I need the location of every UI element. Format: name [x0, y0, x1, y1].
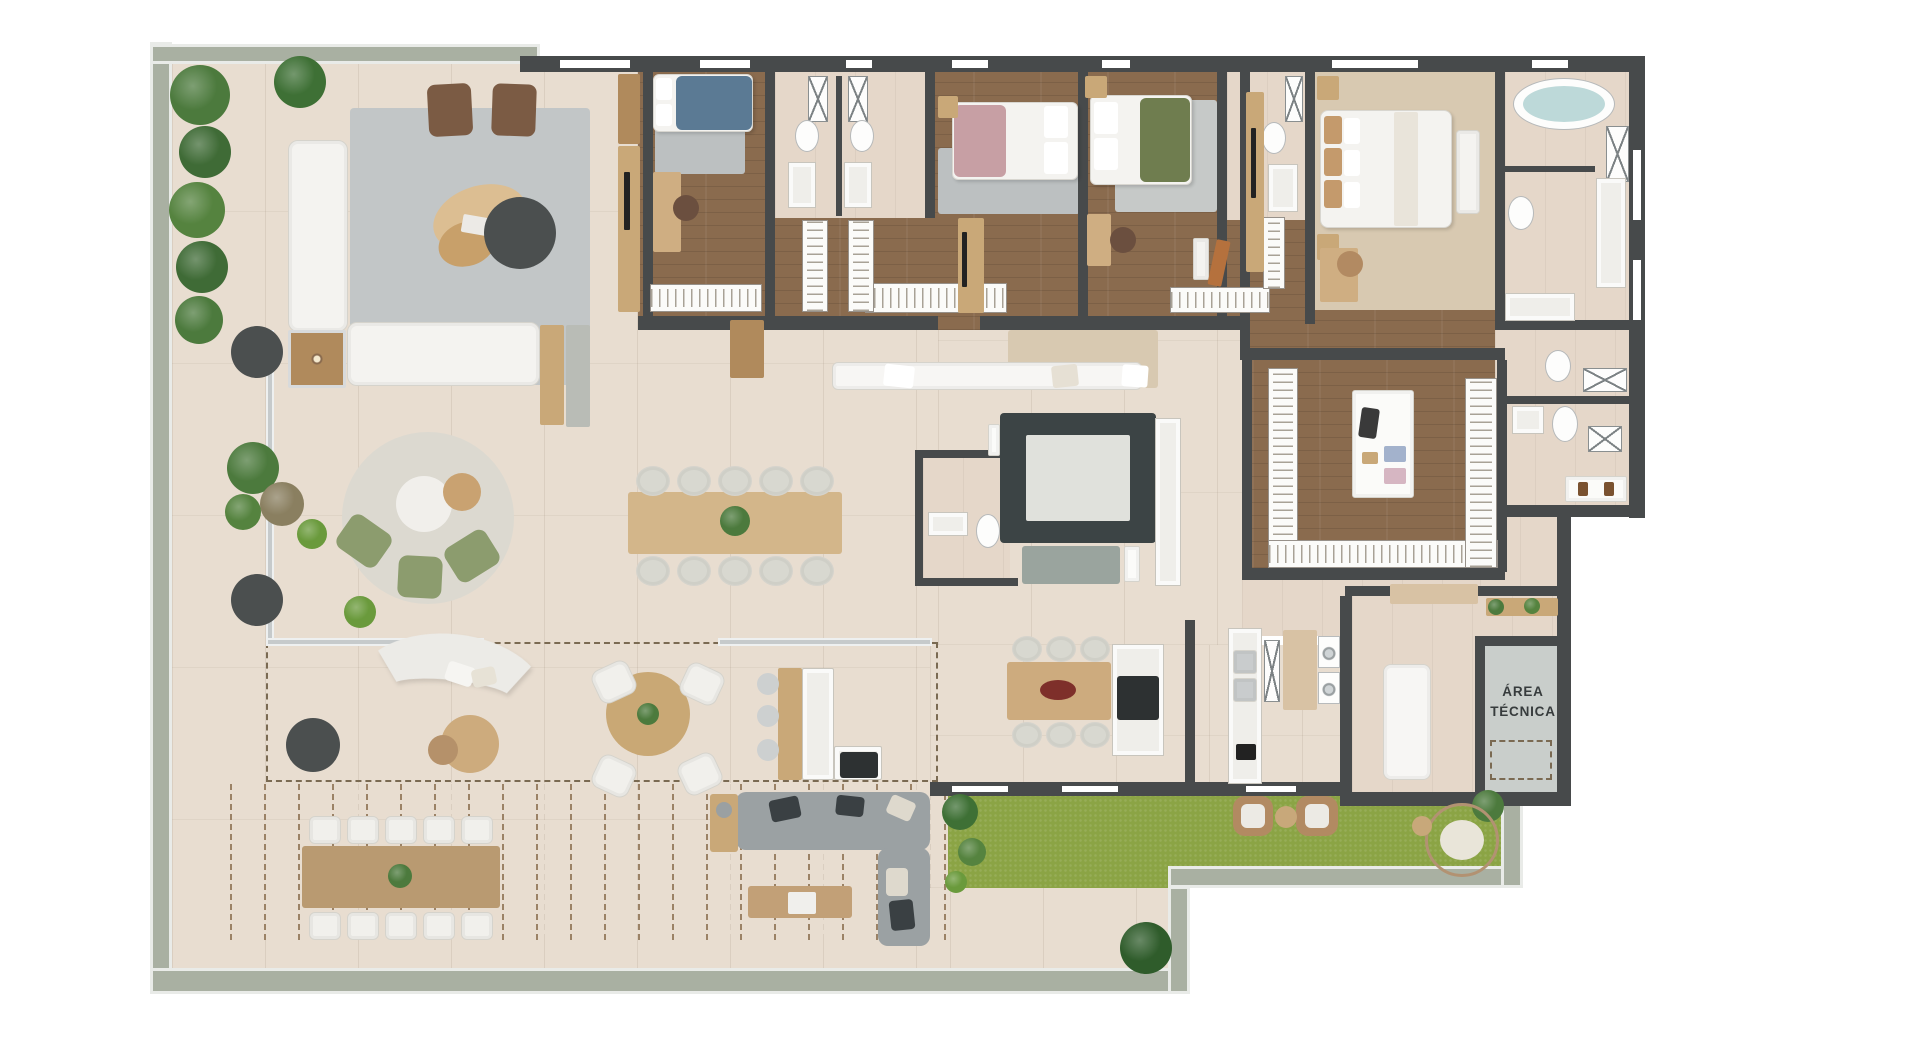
closet-island-shirt-pink — [1384, 468, 1406, 484]
wall-baths-bed2 — [925, 72, 935, 218]
outdoor-chair-b4 — [423, 912, 455, 940]
gourmet-chair-b3 — [1080, 722, 1110, 748]
washer-2 — [1318, 672, 1340, 704]
bath1-toilet — [795, 120, 819, 152]
master-nightstand-top — [1317, 76, 1339, 100]
outdoor-chair-b5 — [461, 912, 493, 940]
dark-planter-2 — [231, 574, 283, 626]
kitchen-sink-1 — [1233, 650, 1257, 674]
hall-cabinet-gray — [1022, 546, 1120, 584]
wall-rightbath-div — [1495, 396, 1641, 404]
round-side-table-wood — [443, 473, 481, 511]
master-pillow-tan-3 — [1324, 180, 1342, 208]
bath2-shower — [848, 76, 868, 122]
bath1-closet — [802, 220, 828, 312]
bed3-desk — [1087, 214, 1111, 266]
wall-bath3-master — [1305, 72, 1315, 324]
kitchen-island-cooktop — [1117, 676, 1159, 720]
plant-corner-top — [274, 56, 326, 108]
window-top-7 — [1532, 60, 1568, 68]
outdoor-chair-t4 — [423, 816, 455, 844]
master-bed-throw — [1394, 112, 1418, 226]
outdoor-gray-sofa-v — [878, 848, 930, 946]
dining-chair-t5 — [800, 466, 834, 496]
dining-chair-t2 — [677, 466, 711, 496]
elevator-call-panel — [988, 424, 1000, 456]
dining-chair-t3 — [718, 466, 752, 496]
master-pillow-tan-1 — [1324, 116, 1342, 144]
dining-chair-t4 — [759, 466, 793, 496]
closet-wardrobe-left — [1268, 368, 1298, 568]
bath1-vanity — [788, 162, 816, 208]
gray-sofa-pillow-cream-2 — [886, 868, 908, 896]
dining-chair-b2 — [677, 556, 711, 586]
wall-masterbath-west — [1495, 60, 1505, 330]
swing-cushion — [1440, 820, 1484, 860]
bar-stool-3 — [757, 739, 779, 761]
wall-bed1-baths — [765, 72, 775, 318]
sage-border-garden-right — [1501, 798, 1523, 888]
bath2-closet — [848, 220, 874, 312]
grass-plant-1 — [942, 794, 978, 830]
bed3-pillow-2 — [1094, 138, 1118, 170]
rightbath-toilet-1 — [1545, 350, 1571, 382]
master-tv — [1251, 128, 1256, 198]
gray-sofa-pillow-dark-2 — [835, 795, 865, 818]
side-table-bowl — [716, 802, 732, 818]
outdoor-chair-t2 — [347, 816, 379, 844]
wall-closet-north — [1240, 348, 1505, 360]
lounge-chair-brown-2 — [491, 83, 537, 137]
window-right-2 — [1633, 260, 1641, 320]
dining-chair-b4 — [759, 556, 793, 586]
entry-console — [1193, 238, 1209, 280]
garden-armchair-2-cushion — [1305, 804, 1329, 828]
dark-planter-1 — [231, 326, 283, 378]
outdoor-chair-t5 — [461, 816, 493, 844]
wall-powder-west — [915, 458, 923, 586]
hall-bench — [832, 362, 1142, 390]
dining-chair-b1 — [636, 556, 670, 586]
living-stone-strip — [566, 325, 590, 427]
master-pillow-white-3 — [1344, 182, 1360, 208]
wall-corridor-south-b — [980, 316, 1242, 330]
powder-sink — [928, 512, 968, 536]
tecnica-shelf-plant-1 — [1488, 599, 1504, 615]
grass-plant-3 — [945, 871, 967, 893]
tecnica-shelf-plant-2 — [1524, 598, 1540, 614]
master-pillow-tan-2 — [1324, 148, 1342, 176]
sage-border-top — [150, 44, 540, 64]
wall-corridor-south-a — [638, 316, 938, 330]
rightbath-vanity-1 — [1505, 293, 1575, 321]
window-south-3 — [1246, 786, 1296, 792]
bath2-vanity — [844, 162, 872, 208]
wall-closet-east — [1497, 360, 1507, 572]
plant-cluster-2 — [225, 494, 261, 530]
bar-counter-wood — [778, 668, 802, 780]
shoe-pair-1 — [1578, 482, 1588, 496]
terrace-wood-table-2 — [428, 735, 458, 765]
bath2-toilet — [850, 120, 874, 152]
dining-chair-b5 — [800, 556, 834, 586]
gourmet-chair-t1 — [1012, 636, 1042, 662]
wall-tecnica-left — [1475, 646, 1485, 796]
plant-wall-3 — [169, 182, 225, 238]
rightbath-toilet-2 — [1552, 406, 1578, 442]
minibar-wine-cabinet — [618, 74, 640, 144]
plant-wall-1 — [170, 65, 230, 125]
wall-kitchen-west — [1185, 620, 1195, 792]
gourmet-chair-t3 — [1080, 636, 1110, 662]
bath3-toilet — [1262, 122, 1286, 154]
living-sofa-vertical — [288, 140, 348, 332]
living-sofa-horizontal — [347, 322, 540, 386]
kitchen-coffee-machine — [1236, 744, 1256, 760]
corridor-closet — [865, 283, 1007, 313]
window-top-1 — [560, 60, 630, 68]
tecnica-label-line2: TÉCNICA — [1483, 702, 1563, 720]
bed3-desk-chair — [1110, 227, 1136, 253]
wine-rack — [730, 320, 764, 378]
deck-plant-dark — [1120, 922, 1172, 974]
closet-island-shirt-blue — [1384, 446, 1406, 462]
bar-stool-1 — [757, 673, 779, 695]
bed2-pillow-1 — [1044, 106, 1068, 138]
bath3-vanity — [1268, 164, 1298, 212]
plant-wall-4 — [176, 241, 228, 293]
plant-cluster-3 — [297, 519, 327, 549]
window-top-5 — [1102, 60, 1130, 68]
dining-plant — [720, 506, 750, 536]
shoe-pair-2 — [1604, 482, 1614, 496]
rightbath-vanity-2 — [1512, 406, 1544, 434]
window-top-4 — [952, 60, 988, 68]
gourmet-platter — [1040, 680, 1076, 700]
rightbath-shower-2 — [1588, 426, 1622, 452]
wall-wing-left — [1340, 596, 1352, 806]
window-top-2 — [700, 60, 750, 68]
living-tv — [624, 172, 630, 230]
window-top-6 — [1332, 60, 1418, 68]
suite-sofa — [1383, 664, 1431, 780]
master-toilet — [1508, 196, 1534, 230]
plant-wall-5 — [175, 296, 223, 344]
bed2-pillow-2 — [1044, 142, 1068, 174]
gourmet-chair-b1 — [1012, 722, 1042, 748]
wall-tecnica-top — [1475, 636, 1571, 646]
kitchen-sink-2 — [1233, 678, 1257, 702]
bed3-closet-h — [1170, 287, 1270, 313]
bath3-shower — [1285, 76, 1303, 122]
green-armchair-2 — [397, 555, 443, 599]
outdoor-chair-b3 — [385, 912, 417, 940]
bed1-closet — [650, 284, 762, 312]
powder-toilet — [976, 514, 1000, 548]
bed2-nightstand — [938, 96, 958, 118]
bed3-nightstand — [1085, 76, 1107, 98]
window-south-1 — [952, 786, 1008, 792]
master-pillow-white-2 — [1344, 150, 1360, 176]
gourmet-chair-b2 — [1046, 722, 1076, 748]
bed1-pillow-1 — [656, 78, 672, 100]
dining-chair-t1 — [636, 466, 670, 496]
window-top-3 — [846, 60, 872, 68]
bath1-shower — [808, 76, 828, 122]
bed3-pillow-1 — [1094, 102, 1118, 134]
rightbath-shower-1 — [1583, 368, 1627, 392]
bed1-desk-chair — [673, 195, 699, 221]
bench-pillow-1 — [883, 363, 915, 388]
plant-cluster-dry — [260, 482, 304, 526]
bed1-rug — [655, 128, 745, 174]
side-table-wheel — [288, 330, 346, 388]
bed3-blanket — [1140, 98, 1190, 182]
laundry-counter — [1390, 584, 1478, 604]
washer-1 — [1318, 636, 1340, 668]
plant-terrace-bright — [344, 596, 376, 628]
master-pillow-white-1 — [1344, 118, 1360, 144]
dining-chair-b3 — [718, 556, 752, 586]
wall-powder-south — [915, 578, 1018, 586]
wall-rightbath-north — [1495, 320, 1641, 330]
garden-armchair-1-cushion — [1241, 804, 1265, 828]
wall-bed2-bed3 — [1078, 72, 1088, 318]
outdoor-chair-b1 — [309, 912, 341, 940]
wall-closet-west — [1242, 360, 1252, 572]
hall-appliance — [1124, 546, 1140, 582]
tecnica-dashed-zone — [1490, 740, 1552, 780]
closet-island-shoes — [1362, 452, 1378, 464]
bar-cooktop — [840, 752, 878, 778]
tecnica-label-line1: ÁREA — [1483, 682, 1563, 700]
master-desk-chair — [1337, 251, 1363, 277]
fire-table-dark — [484, 197, 556, 269]
kitchen-glass-door — [1264, 640, 1280, 702]
sage-border-bottom — [150, 968, 1190, 994]
wall-right-lower — [1557, 505, 1571, 806]
bar-counter-marble — [802, 668, 834, 780]
window-right-1 — [1633, 150, 1641, 220]
outdoor-chair-t1 — [309, 816, 341, 844]
outdoor-chair-b2 — [347, 912, 379, 940]
grass-plant-2 — [958, 838, 986, 866]
master-foot-bench — [1456, 130, 1480, 214]
closet-wardrobe-right — [1465, 378, 1497, 568]
terrace-dark-table — [286, 718, 340, 772]
low-table-tray — [788, 892, 816, 914]
swing-side-table — [1412, 816, 1432, 836]
garden-side-table — [1275, 806, 1297, 828]
lounge-chair-brown-1 — [427, 83, 474, 137]
plant-wall-2 — [179, 126, 231, 178]
master-vanity — [1596, 178, 1626, 288]
sage-border-left — [150, 42, 172, 994]
hall-marble-counter — [1155, 418, 1181, 586]
bed3-closet-v — [1263, 217, 1285, 289]
window-south-2 — [1062, 786, 1118, 792]
living-console-wood — [540, 325, 564, 425]
kitchen-cabinet-column — [1283, 630, 1317, 710]
closet-wardrobe-bottom — [1268, 540, 1498, 568]
wall-masterbath-div — [1505, 166, 1595, 172]
wall-bath-divider — [836, 76, 842, 216]
wall-top — [520, 56, 1645, 72]
master-shower — [1606, 126, 1629, 182]
gourmet-chair-t2 — [1046, 636, 1076, 662]
bed1-pillow-2 — [656, 104, 672, 126]
bench-pillow-2 — [1051, 364, 1079, 389]
bench-pillow-3 — [1121, 364, 1148, 388]
wall-closet-south — [1242, 568, 1505, 580]
master-tub-water — [1523, 86, 1605, 122]
sage-border-notch — [1168, 886, 1190, 994]
glass-railing-horizontal-2 — [718, 638, 932, 646]
gray-sofa-pillow-dark-3 — [888, 899, 915, 931]
bed2-blanket — [954, 105, 1006, 177]
outdoor-chair-t3 — [385, 816, 417, 844]
shoe-cabinet — [1565, 476, 1627, 502]
round-table-plant — [637, 703, 659, 725]
elevator-cab — [1026, 435, 1130, 521]
bar-stool-2 — [757, 705, 779, 727]
bed1-blanket — [676, 76, 752, 130]
floor-plan: ÁREATÉCNICA — [0, 0, 1920, 1037]
long-table-centerpiece — [388, 864, 412, 888]
bed2-tv — [962, 232, 967, 287]
